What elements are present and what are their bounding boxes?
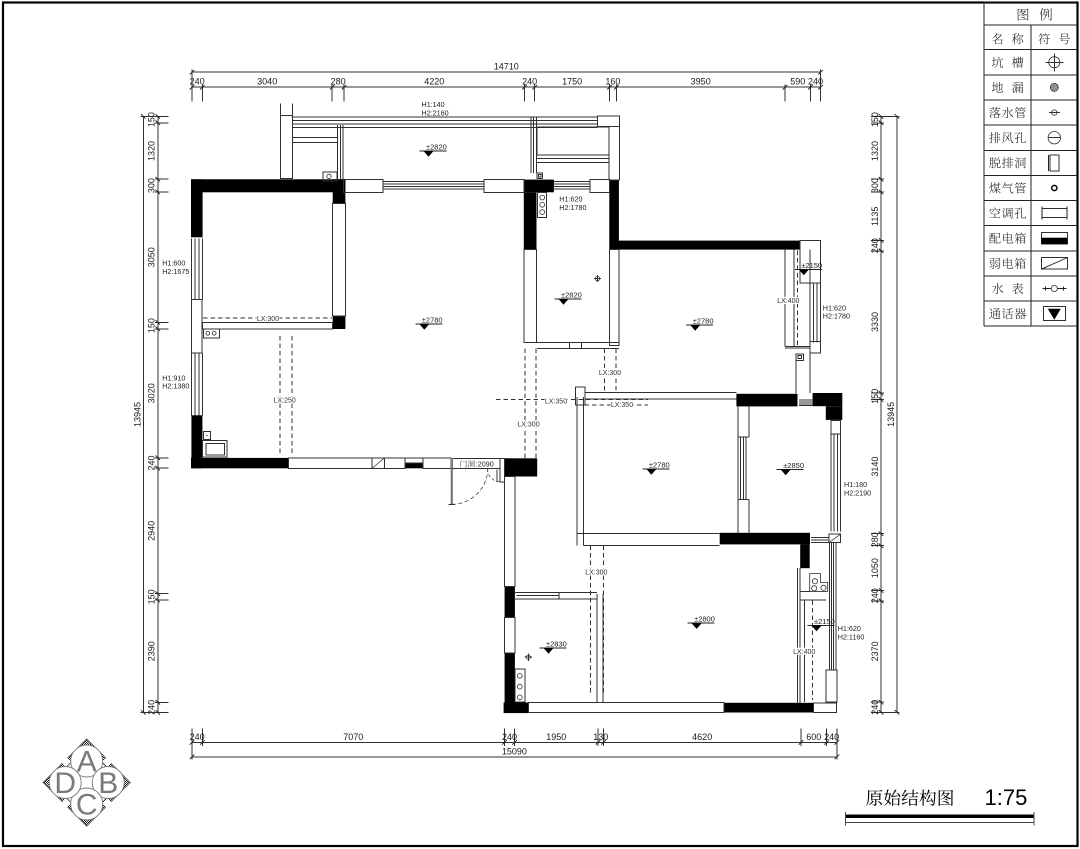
svg-text:160: 160 [605,76,620,86]
svg-text:1320: 1320 [147,141,157,161]
svg-text:300: 300 [870,178,880,193]
svg-text:H2:2190: H2:2190 [844,488,871,497]
svg-text:240: 240 [147,455,157,470]
svg-text:300: 300 [147,178,157,193]
svg-text:240: 240 [502,732,517,742]
svg-text:7070: 7070 [343,732,363,742]
svg-text:4620: 4620 [692,732,712,742]
svg-text:±2780: ±2780 [693,317,714,326]
svg-text:1950: 1950 [546,732,566,742]
svg-text:1750: 1750 [562,76,582,86]
svg-text:H2:1675: H2:1675 [162,267,189,276]
svg-text:15090: 15090 [502,747,527,757]
svg-text:3020: 3020 [147,383,157,403]
svg-text:1050: 1050 [870,558,880,578]
svg-text:3140: 3140 [870,457,880,477]
svg-text:13945: 13945 [886,402,896,427]
svg-text:240: 240 [824,732,839,742]
svg-text:14710: 14710 [494,62,519,72]
svg-text:LX:400: LX:400 [793,649,815,656]
svg-text:LX:300: LX:300 [257,316,279,323]
svg-text:600: 600 [806,732,821,742]
svg-text:3050: 3050 [147,247,157,267]
svg-text:1135: 1135 [870,207,880,226]
svg-text:280: 280 [331,76,346,86]
svg-text:±2850: ±2850 [783,461,804,470]
svg-text:±2150: ±2150 [814,617,835,626]
svg-text:280: 280 [870,532,880,547]
svg-text:2370: 2370 [870,641,880,661]
svg-text:150: 150 [870,112,880,127]
svg-text:B: B [98,767,118,800]
svg-text:LX:350: LX:350 [545,399,567,406]
svg-text:±2820: ±2820 [426,143,447,152]
svg-text:150: 150 [870,389,880,404]
svg-text:240: 240 [190,732,205,742]
svg-text:3040: 3040 [257,76,277,86]
svg-text:150: 150 [147,318,157,333]
svg-text:590: 590 [790,76,805,86]
svg-text:13945: 13945 [132,402,142,427]
svg-text:4220: 4220 [424,76,444,86]
svg-text:H2:1160: H2:1160 [838,632,865,641]
svg-text:±2820: ±2820 [561,291,582,300]
svg-text:±2830: ±2830 [546,640,567,649]
svg-text:±2780: ±2780 [649,461,670,470]
svg-text:H2:1780: H2:1780 [559,203,586,212]
svg-text::2090: :2090 [476,459,494,468]
svg-text:H2:1780: H2:1780 [823,312,850,321]
svg-text:H2:1380: H2:1380 [162,382,189,391]
svg-text:240: 240 [870,700,880,715]
svg-text:2940: 2940 [147,521,157,541]
svg-text:H2:2160: H2:2160 [422,108,449,117]
svg-text:3950: 3950 [691,76,711,86]
svg-text:LX:300: LX:300 [599,370,621,377]
svg-text:1320: 1320 [870,141,880,161]
svg-text:D: D [54,767,76,800]
svg-text:2390: 2390 [147,641,157,661]
svg-text:150: 150 [147,112,157,127]
svg-text:LX:250: LX:250 [274,398,296,405]
svg-text:C: C [76,789,98,822]
svg-text:±2800: ±2800 [694,615,715,624]
svg-text:LX:350: LX:350 [611,402,633,409]
svg-text:±2780: ±2780 [422,316,443,325]
svg-text:3330: 3330 [870,312,880,332]
svg-text:1:75: 1:75 [985,785,1028,810]
svg-text:130: 130 [593,732,608,742]
svg-text:240: 240 [870,588,880,603]
svg-text:240: 240 [522,76,537,86]
svg-text:LX:400: LX:400 [777,298,799,305]
svg-text:240: 240 [870,238,880,253]
svg-text:LX:300: LX:300 [517,422,539,429]
svg-text:150: 150 [147,589,157,604]
svg-text:LX:300: LX:300 [585,569,607,576]
svg-text:±2150: ±2150 [801,261,822,270]
svg-text:A: A [77,746,97,779]
